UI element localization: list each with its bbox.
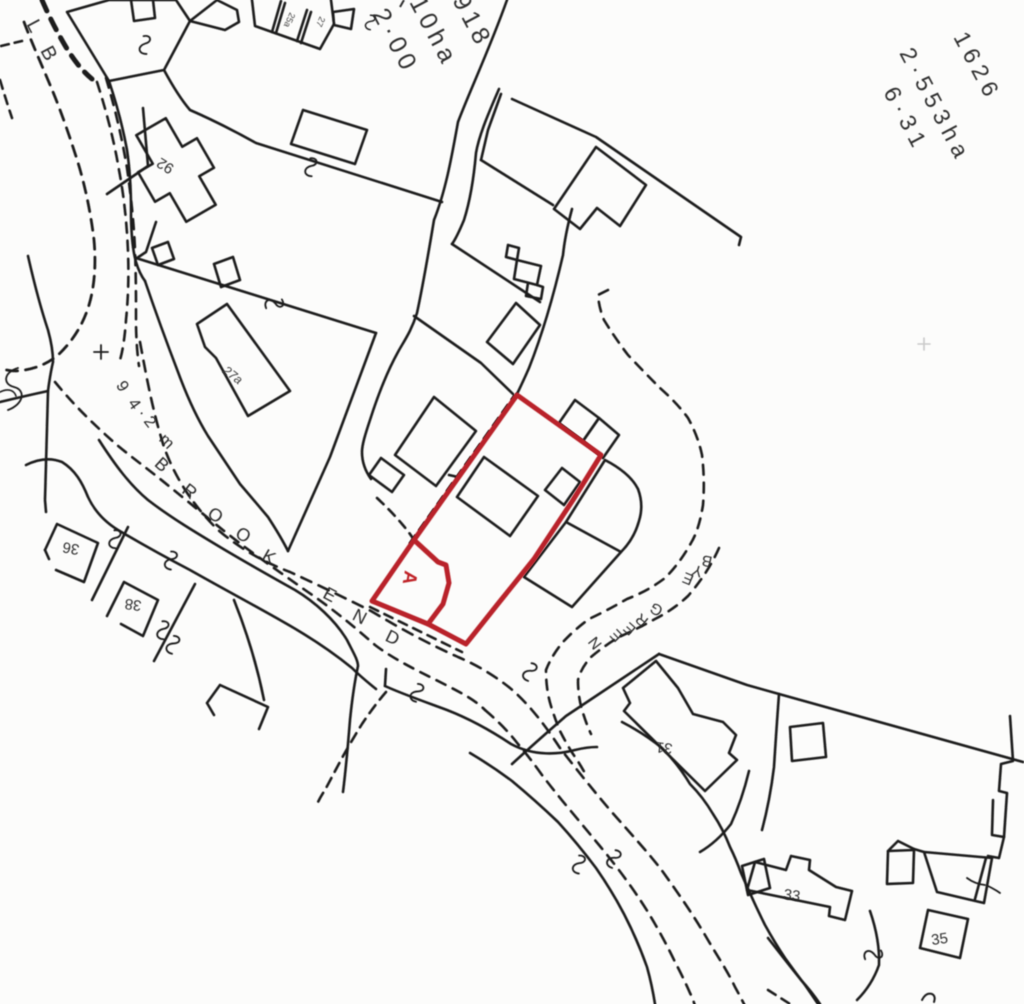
svg-text:31: 31 xyxy=(655,738,674,757)
svg-text:33: 33 xyxy=(782,886,801,905)
svg-text:38: 38 xyxy=(124,595,143,614)
svg-text:36: 36 xyxy=(61,538,80,558)
svg-text:35: 35 xyxy=(930,930,949,949)
